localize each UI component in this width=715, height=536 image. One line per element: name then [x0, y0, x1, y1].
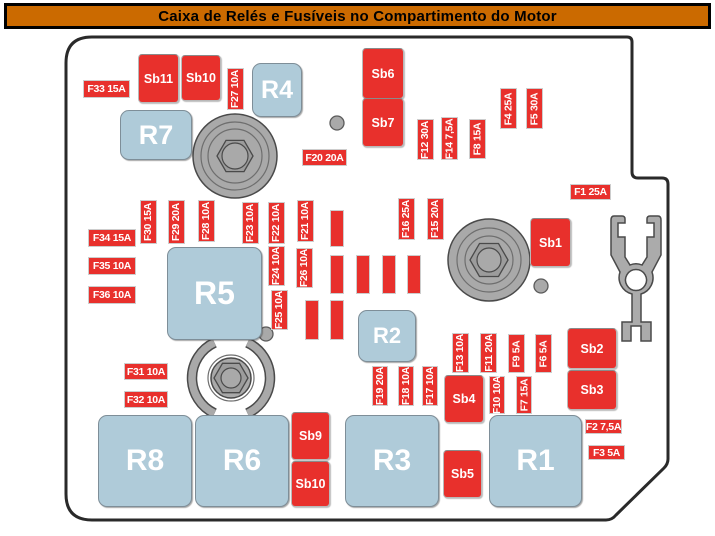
- fuse-label-f28: F28 10A: [198, 200, 215, 242]
- sb-fuse-sb5: Sb5: [443, 450, 482, 498]
- fuse-label-f35: F35 10A: [88, 257, 136, 275]
- fuse-slot: [305, 300, 319, 340]
- fuse-label-f1: F1 25A: [570, 184, 611, 200]
- fuse-label-text: F6 5A: [538, 340, 550, 367]
- fuse-label-f27: F27 10A: [227, 68, 244, 110]
- sb-fuse-sb10: Sb10: [181, 55, 221, 101]
- fuse-label-text: F29 20A: [171, 203, 183, 241]
- fuse-slot: [330, 300, 344, 340]
- fuse-label-text: F24 10A: [271, 247, 283, 285]
- fuse-label-text: F18 10A: [400, 367, 412, 405]
- fuse-label-f5: F5 30A: [526, 88, 543, 129]
- fuse-label-f33: F33 15A: [83, 80, 130, 98]
- fuse-label-text: F14 7,5A: [444, 118, 456, 159]
- fuse-label-f15: F15 20A: [427, 198, 444, 240]
- fuse-label-f6: F6 5A: [535, 334, 552, 373]
- fuse-label-f17: F17 10A: [422, 366, 438, 406]
- fuse-label-f19: F19 20A: [372, 366, 388, 406]
- fuse-label-text: F30 15A: [143, 203, 155, 241]
- fuse-label-text: F4 25A: [503, 92, 515, 125]
- diagram-parts-layer: R4R7R5R2R8R6R3R1Sb11Sb10Sb6Sb7Sb1Sb2Sb3S…: [0, 0, 715, 536]
- fuse-label-text: F21 10A: [300, 202, 312, 240]
- fuse-label-f14: F14 7,5A: [441, 117, 458, 160]
- sb-fuse-sb11: Sb11: [138, 54, 179, 103]
- fuse-label-f13: F13 10A: [452, 333, 469, 373]
- fuse-slot: [382, 255, 396, 294]
- sb-fuse-sb2: Sb2: [567, 328, 617, 369]
- fuse-label-f2: F2 7,5A: [585, 419, 622, 434]
- sb-fuse-sb1: Sb1: [530, 218, 571, 267]
- fuse-slot: [330, 255, 344, 294]
- fuse-label-f26: F26 10A: [296, 248, 313, 288]
- fuse-label-f23: F23 10A: [242, 202, 259, 244]
- fuse-label-f31: F31 10A: [124, 363, 168, 380]
- sb-fuse-sb9: Sb9: [291, 412, 330, 460]
- fuse-label-f20: F20 20A: [302, 149, 347, 166]
- fuse-label-text: F5 30A: [529, 92, 541, 125]
- fuse-label-text: F26 10A: [299, 249, 311, 287]
- sb-fuse-sb7: Sb7: [362, 98, 404, 147]
- fuse-label-text: F27 10A: [230, 70, 242, 108]
- fuse-label-f10: F10 10A: [489, 376, 505, 414]
- relay-r3: R3: [345, 415, 439, 507]
- fuse-label-f3: F3 5A: [588, 445, 625, 460]
- relay-r6: R6: [195, 415, 289, 507]
- fuse-label-f22: F22 10A: [268, 202, 285, 244]
- fuse-label-text: F23 10A: [245, 204, 257, 242]
- fuse-slot: [330, 210, 344, 247]
- fuse-label-text: F28 10A: [201, 202, 213, 240]
- fuse-slot: [356, 255, 370, 294]
- relay-r7: R7: [120, 110, 192, 160]
- fuse-label-f7: F7 15A: [516, 376, 532, 414]
- relay-r8: R8: [98, 415, 192, 507]
- fuse-label-f36: F36 10A: [88, 286, 136, 304]
- fuse-slot: [407, 255, 421, 294]
- fuse-label-f21: F21 10A: [297, 200, 314, 242]
- fuse-label-f18: F18 10A: [398, 366, 414, 406]
- fuse-label-f29: F29 20A: [168, 200, 185, 244]
- sb-fuse-sb10: Sb10: [291, 461, 330, 507]
- fuse-label-text: F11 20A: [483, 334, 495, 372]
- relay-r4: R4: [252, 63, 302, 117]
- fuse-label-text: F19 20A: [374, 367, 386, 405]
- fuse-label-text: F22 10A: [271, 204, 283, 242]
- fuse-label-text: F12 30A: [420, 120, 432, 158]
- fuse-label-text: F8 15A: [472, 123, 484, 156]
- fusebox-diagram: R4R7R5R2R8R6R3R1Sb11Sb10Sb6Sb7Sb1Sb2Sb3S…: [0, 0, 715, 536]
- fuse-label-f9: F9 5A: [508, 334, 525, 373]
- fuse-label-f34: F34 15A: [88, 229, 136, 247]
- fuse-label-f16: F16 25A: [398, 198, 415, 240]
- sb-fuse-sb4: Sb4: [444, 375, 484, 423]
- fuse-label-text: F15 20A: [430, 200, 442, 238]
- fuse-label-text: F9 5A: [511, 340, 523, 367]
- fuse-label-text: F16 25A: [401, 200, 413, 238]
- sb-fuse-sb3: Sb3: [567, 370, 617, 410]
- fuse-label-text: F25 10A: [274, 291, 286, 329]
- fuse-label-f30: F30 15A: [140, 200, 157, 244]
- fuse-label-text: F17 10A: [424, 367, 436, 405]
- fuse-label-f12: F12 30A: [417, 119, 434, 160]
- fuse-label-text: F7 15A: [518, 379, 530, 412]
- sb-fuse-sb6: Sb6: [362, 48, 404, 99]
- relay-r1: R1: [489, 415, 582, 507]
- relay-r2: R2: [358, 310, 416, 362]
- fuse-label-f32: F32 10A: [124, 391, 168, 408]
- fuse-label-f24: F24 10A: [268, 246, 285, 286]
- fuse-label-f4: F4 25A: [500, 88, 517, 129]
- fuse-label-f11: F11 20A: [480, 333, 497, 373]
- fuse-label-f8: F8 15A: [469, 119, 486, 159]
- fuse-label-f25: F25 10A: [271, 290, 288, 330]
- fuse-label-text: F13 10A: [455, 334, 467, 372]
- fuse-label-text: F10 10A: [491, 376, 503, 414]
- relay-r5: R5: [167, 247, 262, 340]
